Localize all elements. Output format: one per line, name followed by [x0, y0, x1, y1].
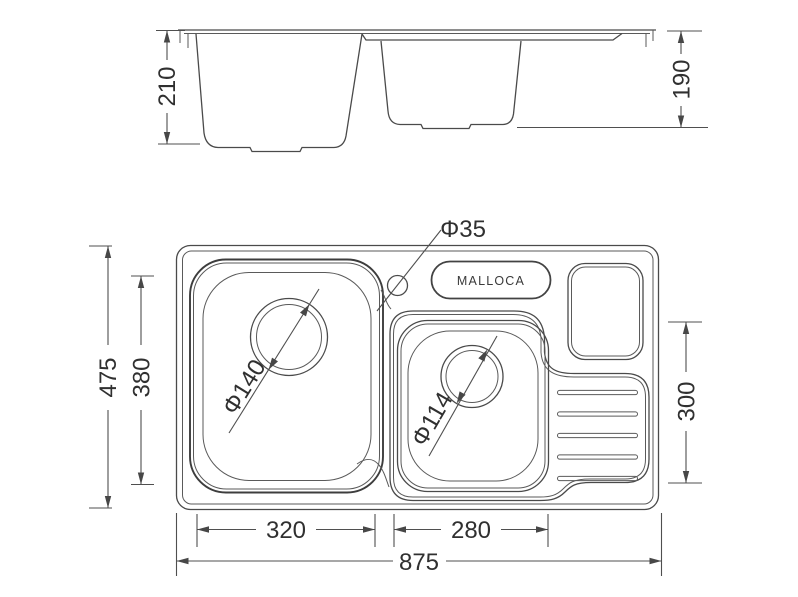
deck-saddle-bottom	[357, 459, 389, 487]
faucet-leader-line	[377, 230, 441, 311]
right-bowl	[398, 321, 549, 492]
drainboard-ridge	[558, 412, 638, 416]
dim-overall-depth-475: 475	[89, 246, 122, 508]
drainboard-ridges	[558, 390, 638, 480]
dim-right-section-label: 300	[674, 381, 701, 421]
elevation-view: 210 190	[154, 30, 708, 152]
left-bowl-profile	[196, 34, 362, 152]
drawing-canvas: 210 190	[0, 0, 798, 597]
deck-step-line	[362, 34, 622, 41]
accessory-tray	[568, 264, 643, 360]
faucet-hole-label: Φ35	[440, 216, 486, 243]
dim-left-bowl-width-label: 320	[266, 517, 306, 544]
drainboard-ridge	[558, 433, 638, 437]
right-bowl-profile	[381, 41, 521, 129]
dim-right-drain: Φ114	[406, 336, 497, 456]
dim-right-section-300: 300	[668, 322, 702, 483]
faucet-hole-callout: Φ35	[377, 216, 486, 311]
dim-left-bowl-depth-label: 380	[129, 357, 156, 397]
drainboard-ridge	[558, 390, 638, 394]
dim-left-bowl-depth-380: 380	[129, 276, 156, 485]
dim-left-bowl-width-320: 320	[197, 514, 375, 547]
dim-left-drain: Φ140	[217, 289, 319, 433]
dim-overall-width-875: 875	[177, 513, 662, 576]
sink-technical-drawing: 210 190	[0, 0, 798, 597]
right-drain-inner	[446, 351, 498, 403]
dim-left-drain-label: Φ140	[217, 355, 271, 420]
drainboard-ridge	[558, 455, 638, 459]
dim-depth-210: 210	[154, 31, 200, 145]
dim-depth-210-label: 210	[154, 66, 181, 106]
dim-right-bowl-width-label: 280	[451, 517, 491, 544]
dim-depth-190-label: 190	[669, 59, 696, 99]
left-bowl-floor	[203, 273, 371, 481]
brand-logo: MALLOCA	[432, 262, 551, 299]
logo-text: MALLOCA	[457, 274, 525, 288]
dim-depth-190: 190	[517, 31, 708, 128]
plan-view: MALLOCA Φ35 Φ140 Φ114	[89, 216, 702, 576]
dim-overall-width-label: 875	[399, 549, 439, 576]
dim-right-bowl-width-280: 280	[394, 514, 548, 547]
dim-right-drain-label: Φ114	[406, 388, 458, 451]
dim-overall-depth-label: 475	[95, 357, 122, 397]
left-bowl	[190, 260, 383, 493]
